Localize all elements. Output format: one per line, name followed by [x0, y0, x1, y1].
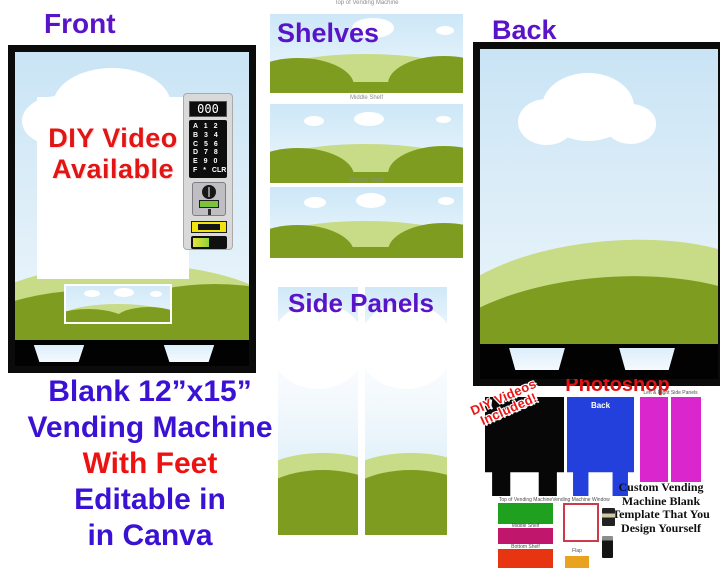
flap-thumb-label: Flap [557, 548, 597, 554]
keypad-row: E 9 0 [193, 158, 223, 166]
cloud-shape [150, 291, 162, 297]
window-thumbnail [563, 503, 599, 542]
flap-thumbnail [565, 556, 589, 568]
side-panel-right-thumbnail [671, 397, 701, 482]
side-panels-thumb-label: Left & Right Side Panels [633, 390, 708, 396]
keypad: A 1 2 B 3 4 C 5 6 D 7 8 E 9 0 F * CLR [189, 120, 227, 178]
top-shelf-label: Top of Vending Machine [270, 0, 463, 6]
middle-shelf-swatch [498, 528, 553, 544]
description-line: Machine Blank [600, 495, 720, 509]
cloud-shape [84, 290, 100, 297]
cloud-shape [354, 112, 384, 126]
coin-mechanism [192, 182, 226, 216]
caption-line: Editable in [2, 482, 298, 518]
window-thumb-label: Vending Machine Window [545, 497, 617, 503]
product-window-graphic [64, 284, 172, 324]
caption-line: in Canva [2, 518, 298, 554]
keypad-row: C 5 6 [193, 141, 223, 149]
instruction-sticker [191, 221, 227, 233]
hill-shape [270, 82, 463, 93]
machine-foot [616, 348, 678, 370]
swatch-label-bottom: Bottom Shelf [488, 544, 563, 550]
machine-foot [506, 348, 568, 370]
keypad-thumbnail [602, 508, 615, 526]
product-caption: Blank 12”x15” Vending Machine With Feet … [2, 374, 298, 554]
machine-foot [31, 345, 87, 362]
caption-line: With Feet [2, 446, 298, 482]
middle-shelf-label: Middle Shelf [270, 95, 463, 101]
coin-mech-thumbnail [602, 536, 613, 558]
caption-line: Vending Machine [2, 410, 298, 446]
coin-return-slot [208, 209, 211, 215]
back-panel-graphic [473, 42, 720, 386]
bottom-shelf-swatch [498, 549, 553, 568]
front-panel-graphic: DIY Video Available 000 A 1 2 B 3 4 C 5 … [8, 45, 256, 373]
machine-foot [161, 345, 217, 362]
bill-acceptor [191, 236, 227, 249]
shelves-heading: Shelves [277, 18, 379, 49]
description-line: Design Yourself [600, 522, 720, 536]
back-heading: Back [492, 15, 557, 46]
diy-video-sign: DIY Video Available [37, 97, 189, 279]
side-panel-right-graphic [365, 287, 447, 535]
bottom-shelf-graphic [270, 187, 463, 258]
coin-display [199, 200, 219, 208]
keypad-row: B 3 4 [193, 132, 223, 140]
back-template-label: Back [567, 401, 634, 410]
swatch-label-middle: Middle Shelf [488, 523, 563, 529]
top-shelf-swatch [498, 503, 553, 524]
photoshop-description: Custom Vending Machine Blank Template Th… [600, 481, 720, 535]
front-heading: Front [44, 8, 116, 40]
cloud-shape [114, 288, 134, 297]
hill-shape [66, 318, 170, 324]
cloud-shape [436, 116, 451, 123]
cloud-shape [304, 116, 324, 126]
keypad-row: A 1 2 [193, 123, 223, 131]
sticker-bar [198, 224, 220, 230]
diy-video-sign-line: Available [37, 154, 189, 185]
keypad-row: D 7 8 [193, 149, 223, 157]
listing-image: Front DIY Video Available 000 A 1 2 B 3 … [0, 0, 720, 576]
cloud-shape [436, 26, 454, 35]
coin-slot-icon [202, 185, 216, 199]
payment-panel: 000 A 1 2 B 3 4 C 5 6 D 7 8 E 9 0 F * CL… [183, 93, 233, 250]
bottom-shelf-label: Bottom Shelf [270, 178, 463, 184]
bill-sticker [193, 238, 209, 247]
side-panel-left-graphic [278, 287, 358, 535]
side-panel-left-thumbnail [640, 397, 668, 482]
price-display: 000 [189, 101, 227, 117]
cloud-shape [438, 197, 454, 205]
cloud-shape [304, 197, 326, 208]
caption-line: Blank 12”x15” [2, 374, 298, 410]
diy-video-sign-line: DIY Video [37, 123, 189, 154]
hill-shape [270, 247, 463, 258]
description-line: Template That You [600, 508, 720, 522]
side-panels-heading: Side Panels [288, 288, 434, 319]
cloud-shape [356, 193, 386, 208]
cloud-shape [542, 73, 634, 141]
description-line: Custom Vending [600, 481, 720, 495]
middle-shelf-graphic [270, 104, 463, 183]
hill-shape [480, 311, 718, 333]
keypad-row: F * CLR [193, 167, 223, 175]
hill-shape [365, 497, 447, 535]
hill-shape [278, 497, 358, 535]
